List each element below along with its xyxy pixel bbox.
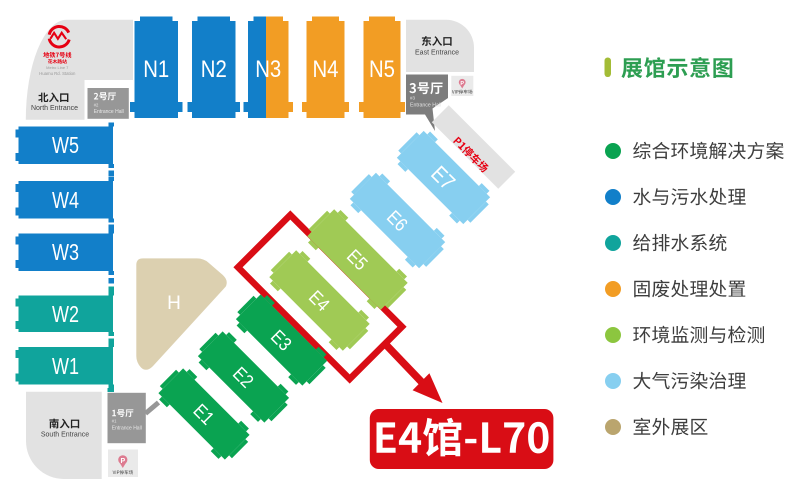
svg-text:South Entrance: South Entrance <box>41 432 89 439</box>
svg-text:W4: W4 <box>52 187 79 213</box>
svg-text:N3: N3 <box>255 56 281 83</box>
svg-text:Entrance Hall: Entrance Hall <box>94 109 124 115</box>
svg-text:#1: #1 <box>112 419 117 424</box>
svg-text:Entrance Hall: Entrance Hall <box>112 426 142 432</box>
svg-text:Entrance Hall: Entrance Hall <box>410 103 441 109</box>
svg-text:#3: #3 <box>410 96 416 101</box>
svg-text:East Entrance: East Entrance <box>415 50 459 57</box>
svg-text:North Entrance: North Entrance <box>31 105 78 112</box>
svg-text:W1: W1 <box>52 353 79 379</box>
svg-text:P: P <box>120 458 125 465</box>
svg-text:W5: W5 <box>52 132 79 158</box>
svg-text:N4: N4 <box>313 56 339 83</box>
svg-text:H: H <box>167 293 181 314</box>
svg-text:#2: #2 <box>94 103 99 108</box>
svg-text:W2: W2 <box>52 301 79 327</box>
svg-text:P: P <box>460 81 464 87</box>
svg-text:Huamu Rd. Station: Huamu Rd. Station <box>39 71 76 76</box>
svg-text:N1: N1 <box>143 56 169 83</box>
svg-text:N2: N2 <box>201 56 227 83</box>
svg-text:N5: N5 <box>369 56 395 83</box>
svg-text:Metro Line 7: Metro Line 7 <box>46 65 69 70</box>
svg-text:W3: W3 <box>52 239 79 265</box>
